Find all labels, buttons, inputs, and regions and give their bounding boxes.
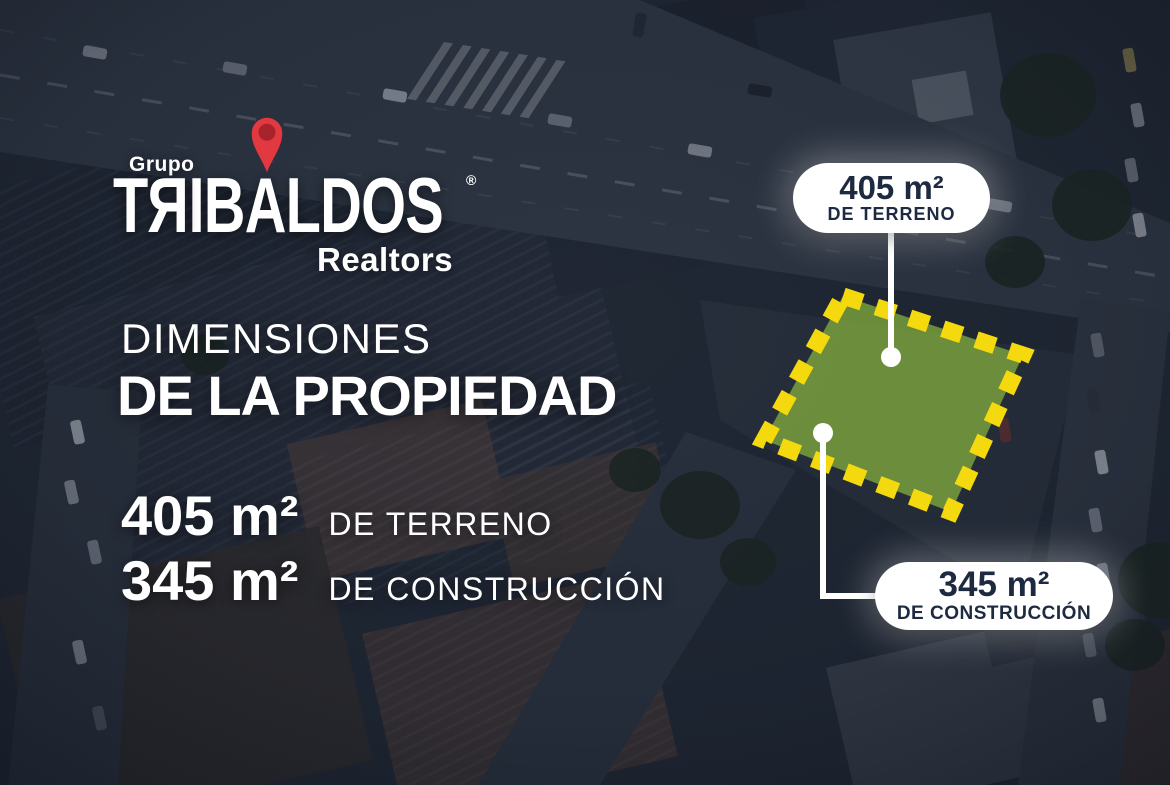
construction-dimension-row: 345 m² DE CONSTRUCCIÓN: [121, 548, 666, 613]
terrain-callout-anchor-dot: [881, 347, 901, 367]
brand-name-rest: IBALDOS: [188, 161, 443, 249]
brand-name-mirrored-r: R: [148, 166, 189, 244]
brand-realtors-label: Realtors: [317, 241, 453, 279]
construction-callout-pill: 345 m² DE CONSTRUCCIÓN: [875, 562, 1113, 630]
construction-callout-value: 345 m²: [939, 567, 1050, 604]
terrain-callout-label: DE TERRENO: [827, 205, 955, 225]
brand-name: TRIBALDOS: [113, 166, 443, 244]
title-line-1: DIMENSIONES: [121, 315, 432, 363]
title-line-2: DE LA PROPIEDAD: [117, 363, 616, 428]
terrain-callout-pill: 405 m² DE TERRENO: [793, 163, 990, 233]
registered-trademark: ®: [466, 172, 476, 188]
property-dimensions-flyer: Grupo TRIBALDOS ® Realtors DIMENSIONES D…: [0, 0, 1170, 785]
terrain-dimension-label: DE TERRENO: [328, 492, 552, 557]
terrain-dimension-value: 405 m²: [121, 483, 298, 548]
terrain-callout-value: 405 m²: [839, 171, 944, 206]
construction-dimension-value: 345 m²: [121, 548, 298, 613]
construction-dimension-label: DE CONSTRUCCIÓN: [328, 557, 665, 622]
construction-callout-label: DE CONSTRUCCIÓN: [897, 604, 1091, 625]
terrain-dimension-row: 405 m² DE TERRENO: [121, 483, 666, 548]
construction-callout-anchor-dot: [813, 423, 833, 443]
brand-name-t: T: [113, 161, 148, 249]
dimensions-list: 405 m² DE TERRENO 345 m² DE CONSTRUCCIÓN: [121, 483, 666, 613]
